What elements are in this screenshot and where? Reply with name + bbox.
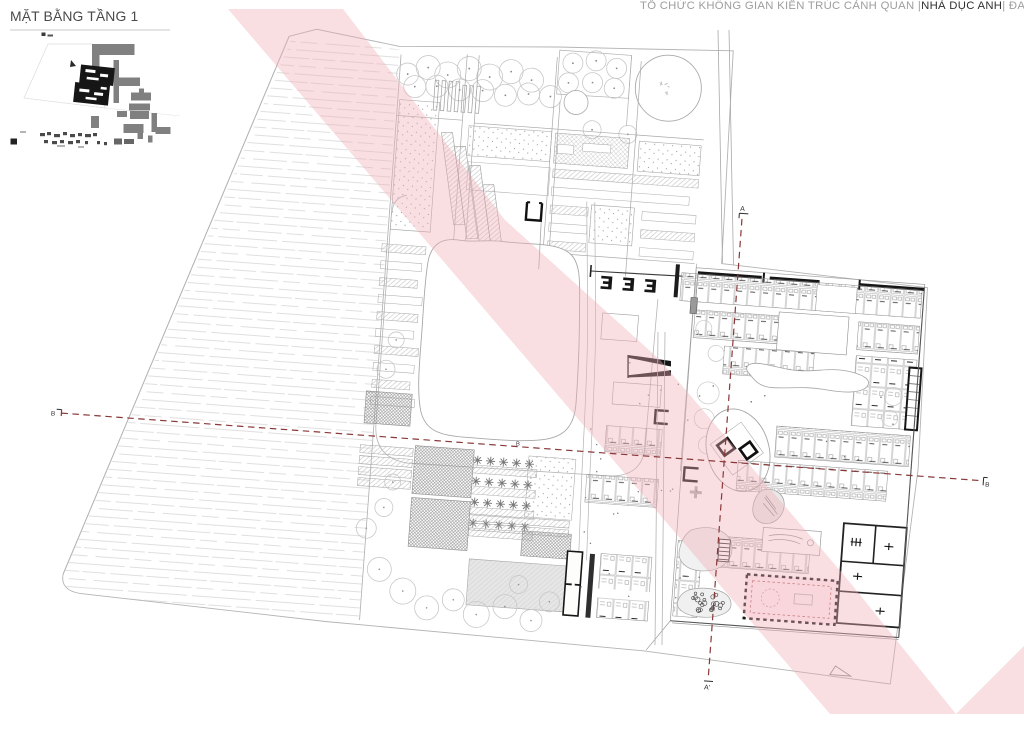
svg-text:B: B (51, 410, 56, 417)
svg-text:B: B (516, 441, 520, 447)
svg-text:A': A' (704, 684, 711, 691)
svg-text:B: B (985, 481, 990, 488)
svg-text:TỔ CHỨC KHÔNG GIAN KIẾN TRÚC C: TỔ CHỨC KHÔNG GIAN KIẾN TRÚC CẢNH QUAN |… (640, 0, 1024, 12)
svg-text:MẶT BẰNG TẦNG 1: MẶT BẰNG TẦNG 1 (10, 7, 138, 24)
svg-text:A: A (740, 206, 745, 213)
